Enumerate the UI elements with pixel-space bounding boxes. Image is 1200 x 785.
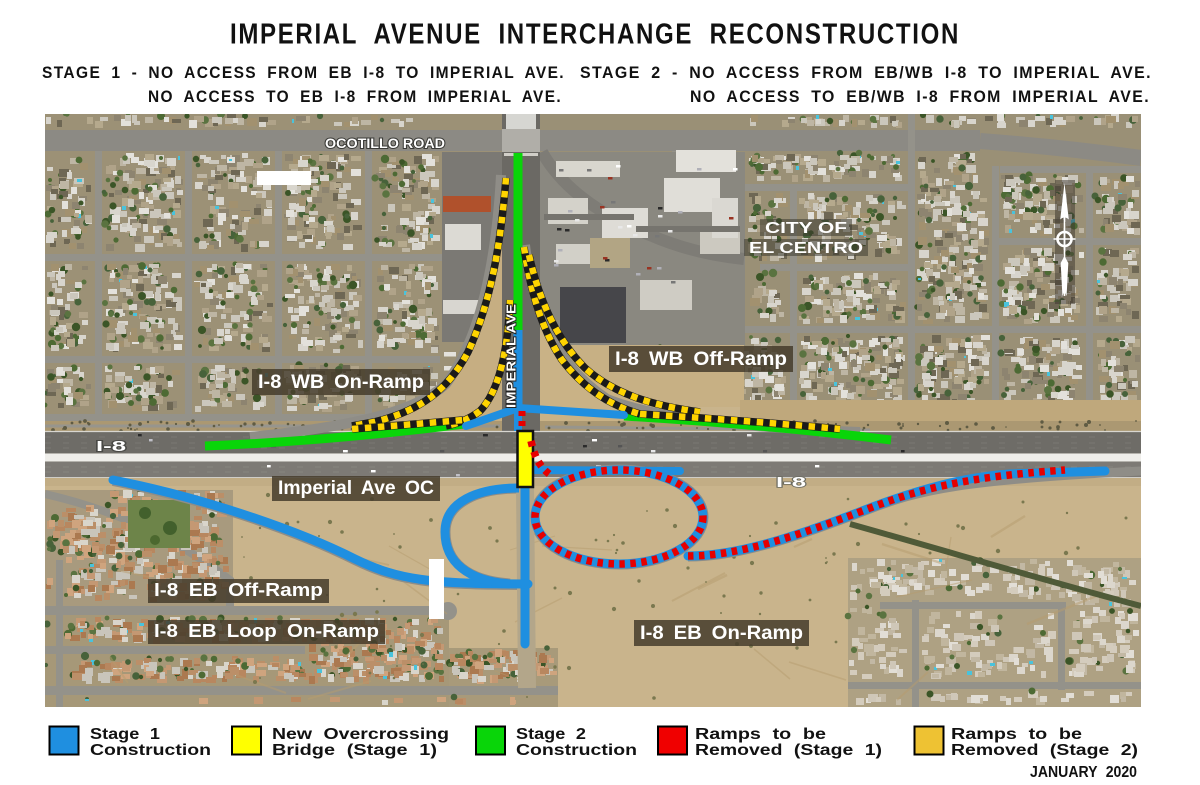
- svg-text:IMPERIAL AVENUE INTERCHANGE RE: IMPERIAL AVENUE INTERCHANGE RECONSTRUCTI…: [230, 19, 960, 51]
- svg-text:STAGE 1 - NO ACCESS FROM EB I-: STAGE 1 - NO ACCESS FROM EB I-8 TO IMPER…: [42, 63, 565, 82]
- svg-text:STAGE 2 - NO ACCESS FROM EB/WB: STAGE 2 - NO ACCESS FROM EB/WB I-8 TO IM…: [580, 63, 1152, 82]
- svg-text:NO ACCESS TO EB/WB I-8 FROM IM: NO ACCESS TO EB/WB I-8 FROM IMPERIAL AVE…: [690, 87, 1150, 106]
- svg-text:NO ACCESS TO EB I-8 FROM IMPER: NO ACCESS TO EB I-8 FROM IMPERIAL AVE.: [148, 87, 562, 106]
